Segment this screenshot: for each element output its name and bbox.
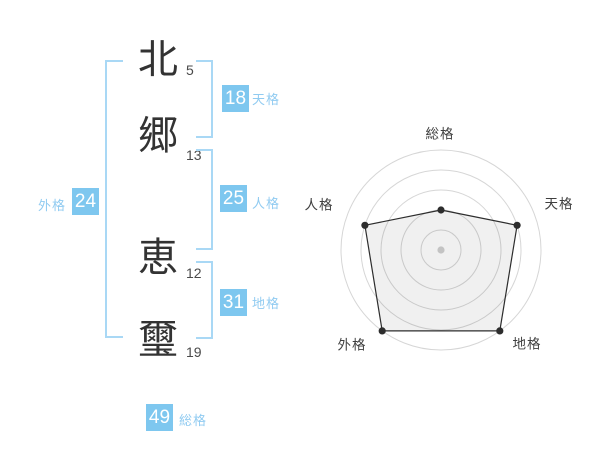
bracket-gaikaku	[105, 60, 123, 338]
soukaku-badge: 49	[146, 404, 173, 431]
name-char: 北	[133, 40, 183, 80]
radar-axis-label: 天格	[545, 197, 574, 212]
bracket-jinkaku	[196, 149, 213, 250]
radar-chart: 総格天格地格外格人格	[295, 120, 595, 360]
radar-point	[361, 222, 368, 229]
gaikaku-label: 外格	[38, 198, 66, 213]
radar-axis-label: 外格	[338, 338, 367, 353]
name-analysis-panel: 北 郷 恵 璽 5 13 12 19 18 25 31 24 49 天格 人格 …	[0, 0, 600, 470]
soukaku-label: 総格	[179, 413, 207, 428]
radar-point	[437, 206, 444, 213]
radar-point	[496, 327, 503, 334]
jinkaku-label: 人格	[252, 196, 280, 211]
radar-point	[514, 222, 521, 229]
radar-axis-label: 総格	[426, 127, 455, 142]
bracket-chikaku	[196, 261, 213, 339]
stroke-count: 19	[186, 344, 202, 360]
stroke-count: 5	[186, 62, 194, 78]
chikaku-badge: 31	[220, 289, 247, 316]
name-char: 璽	[133, 320, 183, 360]
name-char: 郷	[133, 116, 183, 156]
radar-polygon	[365, 210, 517, 331]
radar-center-dot	[437, 246, 444, 253]
name-char: 恵	[133, 238, 183, 278]
bracket-tenkaku	[196, 60, 213, 138]
tenkaku-badge: 18	[222, 85, 249, 112]
radar-axis-label: 人格	[305, 198, 334, 213]
gaikaku-badge: 24	[72, 188, 99, 215]
radar-chart-area: 総格天格地格外格人格	[295, 120, 595, 360]
radar-axis-label: 地格	[513, 337, 542, 352]
chikaku-label: 地格	[252, 296, 280, 311]
jinkaku-badge: 25	[220, 185, 247, 212]
tenkaku-label: 天格	[252, 92, 280, 107]
radar-point	[379, 327, 386, 334]
